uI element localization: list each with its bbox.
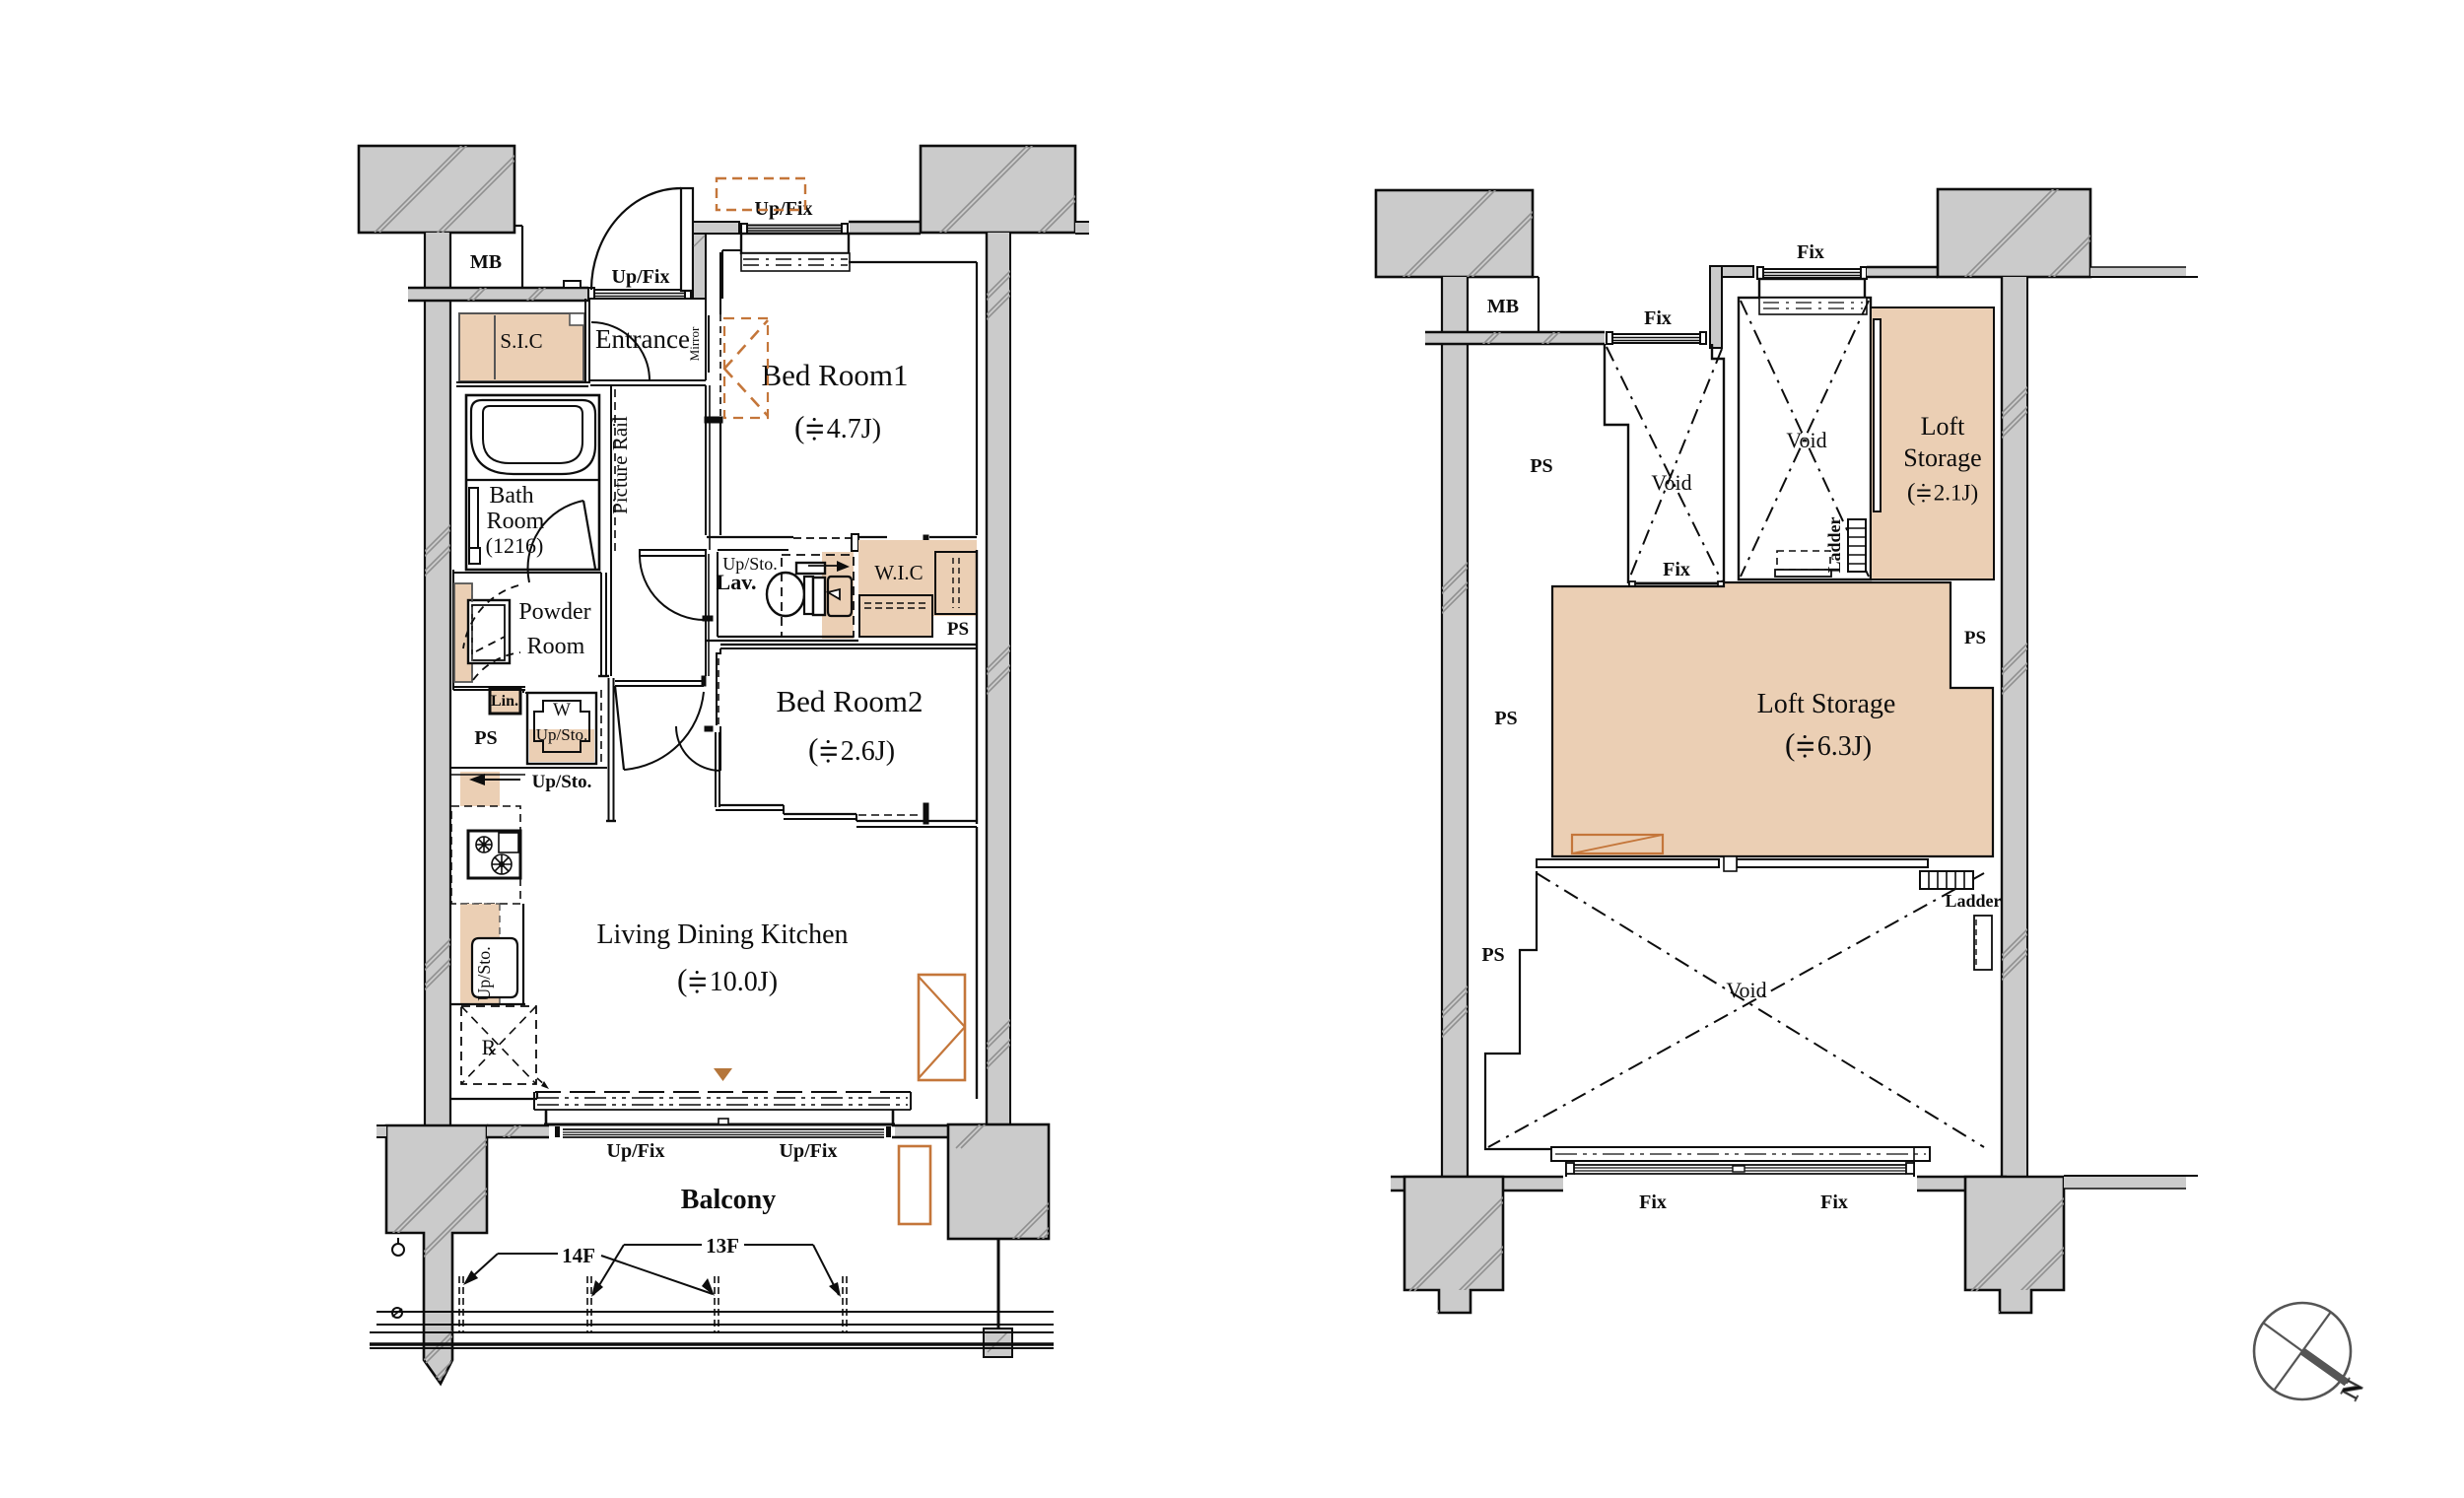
svg-text:Ladder: Ladder xyxy=(1824,516,1844,573)
svg-text:2.6J): 2.6J) xyxy=(841,736,895,767)
svg-text:(: ( xyxy=(808,732,818,767)
svg-text:Fix: Fix xyxy=(1820,1192,1848,1213)
svg-text:(: ( xyxy=(1907,478,1916,507)
svg-text:Up/Sto.: Up/Sto. xyxy=(474,946,494,1001)
svg-text:R: R xyxy=(482,1035,497,1059)
svg-text:Lin.: Lin. xyxy=(491,693,518,710)
svg-text:PS: PS xyxy=(1964,628,1986,648)
svg-text:(: ( xyxy=(1785,727,1795,762)
svg-text:PS: PS xyxy=(1481,944,1504,966)
svg-text:Powder: Powder xyxy=(518,599,590,625)
svg-text:(: ( xyxy=(794,410,804,444)
svg-text:Fix: Fix xyxy=(1663,559,1690,580)
svg-text:MB: MB xyxy=(470,251,502,273)
svg-text:Void: Void xyxy=(1726,978,1766,1002)
svg-text:PS: PS xyxy=(1530,455,1552,477)
svg-text:W.I.C: W.I.C xyxy=(874,561,923,584)
svg-text:Up/Fix: Up/Fix xyxy=(607,1140,665,1162)
svg-text:PS: PS xyxy=(474,727,497,749)
svg-text:Balcony: Balcony xyxy=(681,1185,776,1215)
svg-text:Mirror: Mirror xyxy=(687,326,702,361)
svg-text:Up/Fix: Up/Fix xyxy=(780,1140,838,1162)
svg-text:Ladder: Ladder xyxy=(1945,891,2001,911)
svg-text:Fix: Fix xyxy=(1639,1192,1667,1213)
svg-text:Entrance: Entrance xyxy=(595,324,690,354)
svg-text:14F: 14F xyxy=(562,1244,595,1267)
svg-text:Room: Room xyxy=(527,634,585,659)
svg-text:PS: PS xyxy=(1494,708,1517,729)
svg-text:Up/Fix: Up/Fix xyxy=(612,266,670,288)
svg-text:Living Dining Kitchen: Living Dining Kitchen xyxy=(596,919,848,950)
svg-text:Loft: Loft xyxy=(1921,412,1966,441)
svg-text:Storage: Storage xyxy=(1903,443,1981,472)
svg-text:MB: MB xyxy=(1487,296,1519,317)
svg-text:Fix: Fix xyxy=(1644,307,1672,329)
svg-text:4.7J): 4.7J) xyxy=(827,414,881,444)
svg-text:Bed Room1: Bed Room1 xyxy=(762,358,909,392)
svg-text:Room: Room xyxy=(487,509,545,534)
svg-text:Bed Room2: Bed Room2 xyxy=(777,684,924,718)
svg-text:2.1J): 2.1J) xyxy=(1934,481,1978,506)
svg-text:(1216): (1216) xyxy=(486,533,544,558)
svg-text:Void: Void xyxy=(1651,470,1691,495)
svg-text:Lav.: Lav. xyxy=(717,570,757,594)
svg-text:(: ( xyxy=(677,963,687,997)
svg-text:Loft Storage: Loft Storage xyxy=(1757,689,1896,719)
svg-text:13F: 13F xyxy=(706,1234,739,1258)
svg-text:Up/Sto.: Up/Sto. xyxy=(532,772,592,792)
svg-text:6.3J): 6.3J) xyxy=(1817,731,1872,762)
svg-text:10.0J): 10.0J) xyxy=(710,967,778,997)
svg-text:Up/Sto.: Up/Sto. xyxy=(536,725,587,744)
svg-text:Fix: Fix xyxy=(1797,241,1824,263)
svg-text:Bath: Bath xyxy=(489,483,533,509)
svg-text:Void: Void xyxy=(1786,428,1826,452)
svg-text:S.I.C: S.I.C xyxy=(500,329,542,353)
svg-text:W: W xyxy=(553,700,571,720)
svg-text:PS: PS xyxy=(947,619,969,640)
